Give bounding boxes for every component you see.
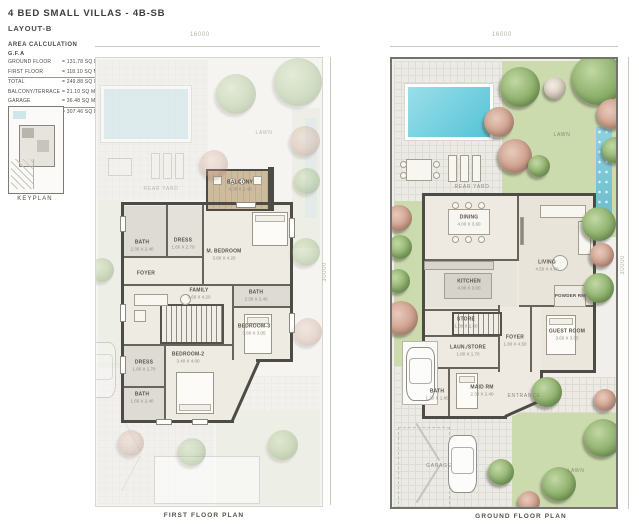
lounger [448,155,457,182]
wall [256,359,293,362]
sofa [540,205,586,218]
garage-label: GARAGE [426,463,452,469]
room-label: FOYER [137,271,155,278]
tree [294,318,322,346]
tree [290,126,320,156]
room-label: FOYER1.80 X 4.50 [503,335,526,348]
page-title: 4 BED SMALL VILLAS - 4B-SB [8,8,165,19]
tree [294,168,320,194]
gfa-label: G.F.A [8,51,25,57]
first-floor-caption: FIRST FLOOR PLAN [164,512,244,519]
armchair [134,310,146,322]
wall [234,306,291,308]
balcony-door [236,202,256,208]
ground-floor-plan: DINING4.00 X 3.60 LIVING4.50 X 4.90 KITC… [390,57,618,509]
room-label: GUEST ROOM3.60 X 3.05 [549,329,585,342]
keyplan-caption: KEYPLAN [17,196,52,202]
room-label: BEDROOM-33.60 X 3.05 [238,324,270,337]
wall [123,386,165,388]
tree [268,430,298,460]
area-row-label: BALCONY/TERRACE [8,88,62,98]
room-label: BEDROOM-23.40 X 4.00 [172,352,204,365]
area-row-label: FIRST FLOOR [8,68,62,78]
wall [542,370,596,373]
rear-yard-label: REAR YARD [143,186,178,192]
dimension-line [628,57,629,509]
outdoor-chair [433,172,440,179]
keyplan-driveway [11,159,34,189]
dining-chair [478,236,485,243]
dimension-label: 16000 [190,32,210,38]
wall [123,284,291,286]
lounger [175,153,184,179]
room-label: LAUN./STORE1.80 X 1.70 [450,345,486,358]
room-label: BATH1.20 X 1.80 [425,389,448,402]
tree [498,139,532,173]
room-label: LIVING4.50 X 4.90 [535,260,558,273]
pool [101,86,191,142]
dining-chair [452,202,459,209]
tree [584,273,614,303]
car [95,342,116,398]
wall [164,344,166,421]
lounger [460,155,469,182]
tree [528,155,550,177]
wall [530,305,532,372]
room-label: DINING4.00 X 3.60 [457,215,480,228]
room-label: FAMILY3.60 X 4.20 [187,288,210,301]
wall [202,204,204,286]
room-label: KITCHEN4.00 X 3.00 [457,279,481,292]
bed [176,372,214,414]
wall [166,204,168,258]
lounger [472,155,481,182]
tree [518,491,540,509]
room-label: MAID RM2.30 X 2.40 [470,385,493,398]
tree [532,377,562,407]
lawn-label: LAWN [255,130,272,136]
room-label: BALCONY4.35 X 2.40 [227,180,253,193]
keyplan-pool [13,111,26,119]
keyplan-room [22,128,34,138]
wall [517,195,519,261]
window [192,419,208,425]
area-calculation-heading: AREA CALCULATION [8,42,77,48]
window [120,216,126,232]
pool [405,84,493,140]
lounger [163,153,172,179]
dimension-line [390,46,618,47]
terrace [154,456,260,504]
dining-chair [478,202,485,209]
window [156,419,172,425]
room-label: STORE1.80 X 1.60 [454,317,477,330]
keyplan-room [37,140,49,152]
tree [544,77,566,99]
room-label: M. BEDROOM3.80 X 4.20 [206,249,241,262]
room-label: BATH2.30 X 2.40 [244,290,267,303]
tree [216,74,256,114]
entrance-label: ENTRANCE [507,393,540,399]
kitchen-counter [424,261,494,270]
wall [123,344,233,346]
dimension-label: 30000 [620,255,626,275]
tree [500,67,540,107]
outdoor-table [406,159,432,181]
window [120,304,126,322]
tree [292,238,320,266]
area-row-label: TOTAL [8,78,62,88]
wall [121,202,293,205]
wall [121,420,234,423]
dining-chair [465,236,472,243]
tree [178,438,206,466]
tree [274,58,322,106]
lawn-label: LAWN [567,468,584,474]
tree [582,207,616,241]
lounger [151,153,160,179]
room-label: DRESS1.60 X 2.70 [171,238,194,251]
room-label: BATH2.30 X 2.40 [130,240,153,253]
staircase [160,304,224,344]
bed [252,212,288,246]
tree [584,419,618,457]
tree [594,389,616,411]
layout-subtitle: LAYOUT-B [8,24,52,33]
dimension-label: 16000 [492,32,512,38]
outdoor-chair [400,172,407,179]
floorplan-sheet: 4 BED SMALL VILLAS - 4B-SB LAYOUT-B AREA… [0,0,639,524]
balcony-chair [253,176,262,185]
room-label: DRESS1.60 X 1.70 [132,360,155,373]
tv-unit [520,217,524,245]
outdoor-table [108,158,132,176]
tree [488,459,514,485]
sofa [134,294,168,306]
car [448,435,477,493]
room-label: BATH1.60 X 2.40 [130,392,153,405]
wall [422,416,507,419]
wall [422,193,596,196]
rear-yard-label: REAR YARD [454,184,489,190]
ground-floor-caption: GROUND FLOOR PLAN [475,513,567,520]
tree [484,107,514,137]
room-label: POWDER RM [555,293,585,299]
tree [590,243,614,267]
room-floor [124,346,164,420]
lawn-label: LAWN [553,132,570,138]
dining-chair [465,202,472,209]
area-row-label: GROUND FLOOR [8,58,62,68]
window [289,218,295,238]
wall [232,284,234,360]
window [120,356,126,374]
wall [123,256,202,258]
first-floor-plan: BALCONY4.35 X 2.40 BATH2.30 X 2.40 DRESS… [95,57,323,507]
dimension-line [330,57,331,505]
keyplan [8,106,64,194]
dimension-label: 30000 [322,262,328,282]
dimension-line [95,46,320,47]
outdoor-chair [400,161,407,168]
wall [424,309,500,311]
tree [200,150,228,178]
dining-chair [452,236,459,243]
outdoor-chair [433,161,440,168]
tree [118,430,144,456]
